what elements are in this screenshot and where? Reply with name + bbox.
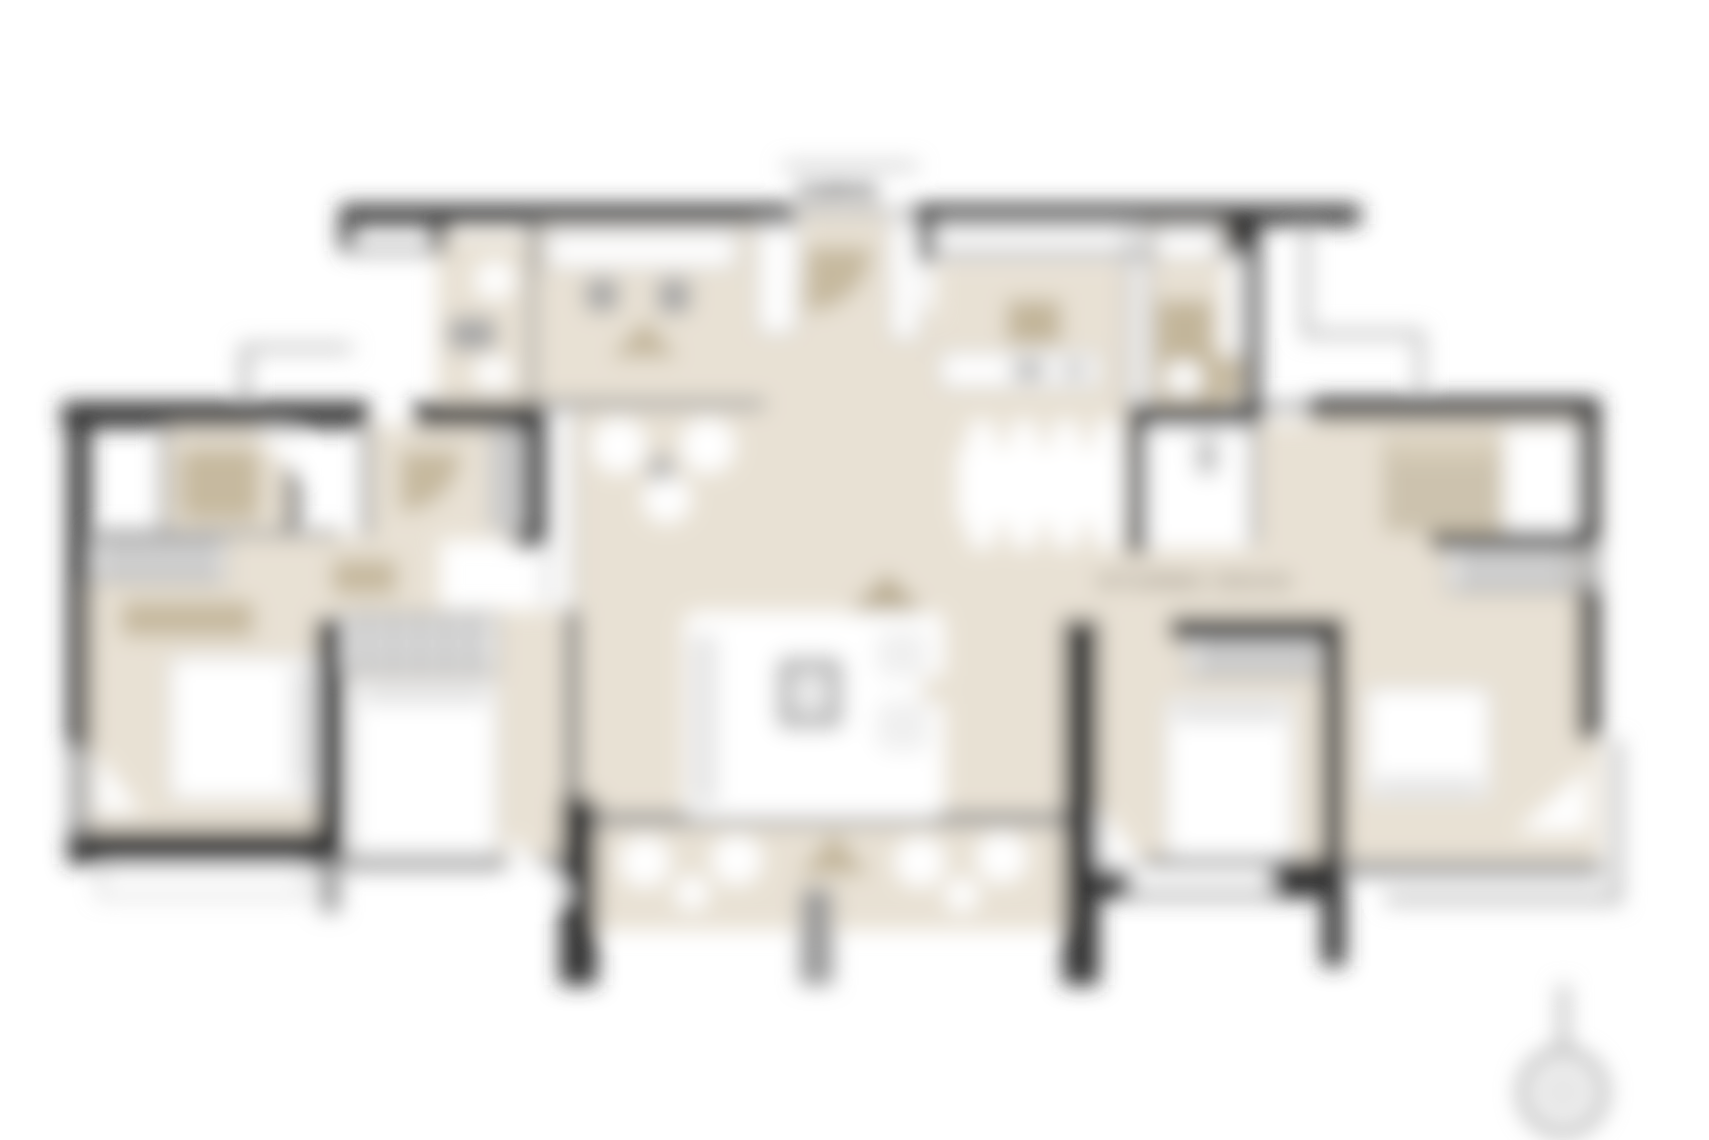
svg-text:OTURMA ODASI: OTURMA ODASI [1098,569,1294,594]
svg-text:GIRIS: GIRIS [797,177,879,210]
